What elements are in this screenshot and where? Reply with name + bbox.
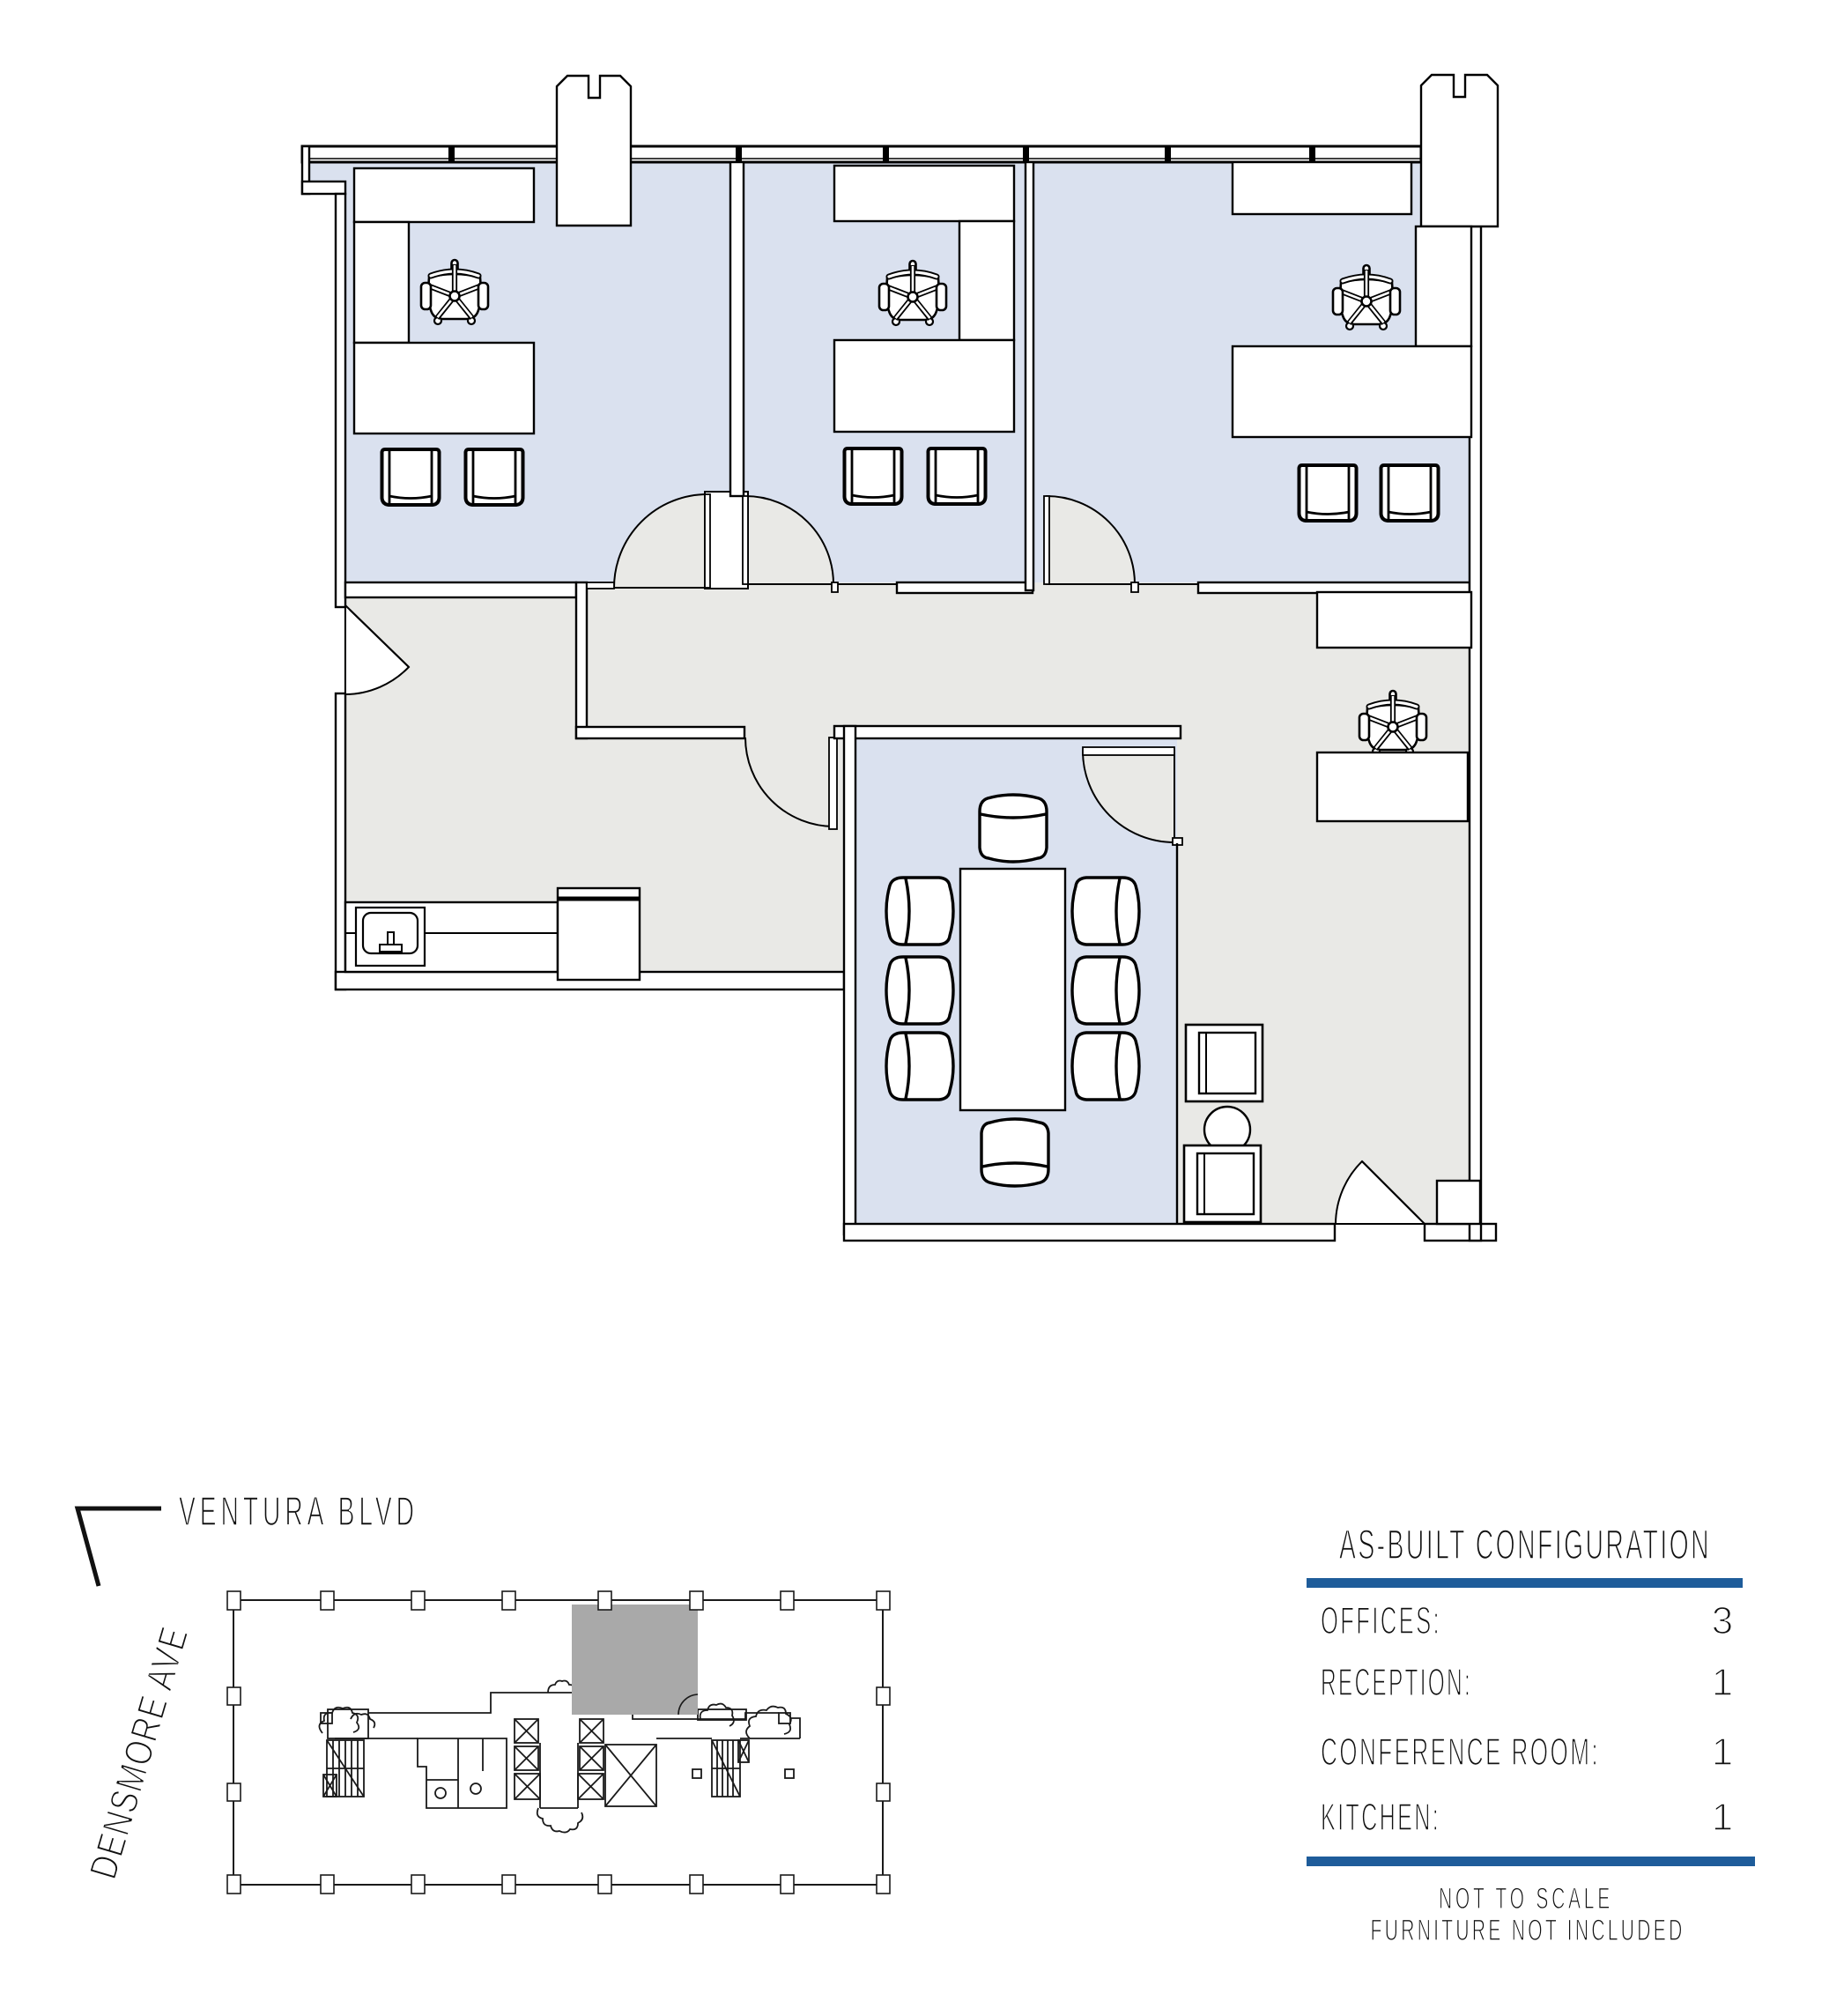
svg-text:OFFICES:: OFFICES:	[1321, 1599, 1441, 1642]
svg-text:1: 1	[1712, 1661, 1733, 1704]
svg-text:FURNITURE NOT INCLUDED: FURNITURE NOT INCLUDED	[1371, 1914, 1685, 1947]
svg-text:CONFERENCE ROOM:: CONFERENCE ROOM:	[1321, 1731, 1600, 1774]
svg-text:NOT TO SCALE: NOT TO SCALE	[1439, 1882, 1613, 1916]
svg-text:1: 1	[1712, 1796, 1733, 1839]
svg-text:3: 3	[1712, 1599, 1733, 1642]
svg-text:VENTURA BLVD: VENTURA BLVD	[179, 1488, 418, 1534]
svg-text:KITCHEN:: KITCHEN:	[1321, 1796, 1440, 1839]
svg-text:RECEPTION:: RECEPTION:	[1321, 1661, 1472, 1704]
svg-text:1: 1	[1712, 1731, 1733, 1774]
svg-text:AS-BUILT CONFIGURATION: AS-BUILT CONFIGURATION	[1339, 1521, 1711, 1568]
